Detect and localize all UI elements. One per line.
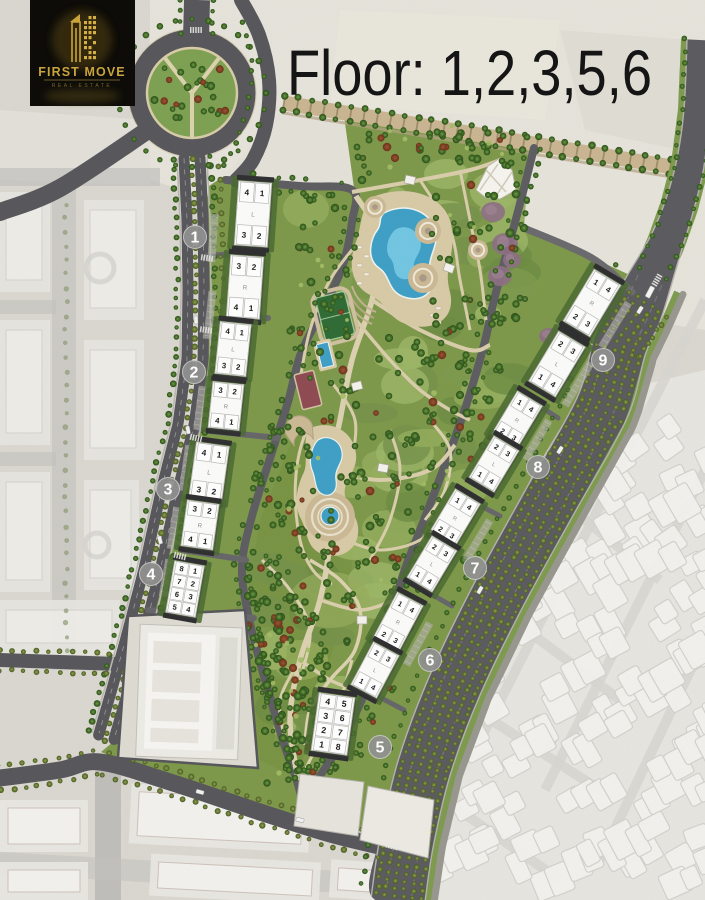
svg-text:FIRST MOVE: FIRST MOVE [38, 65, 125, 79]
svg-text:Floor: 1,2,3,5,6: Floor: 1,2,3,5,6 [287, 37, 652, 109]
svg-text:REAL ESTATE: REAL ESTATE [52, 83, 112, 89]
